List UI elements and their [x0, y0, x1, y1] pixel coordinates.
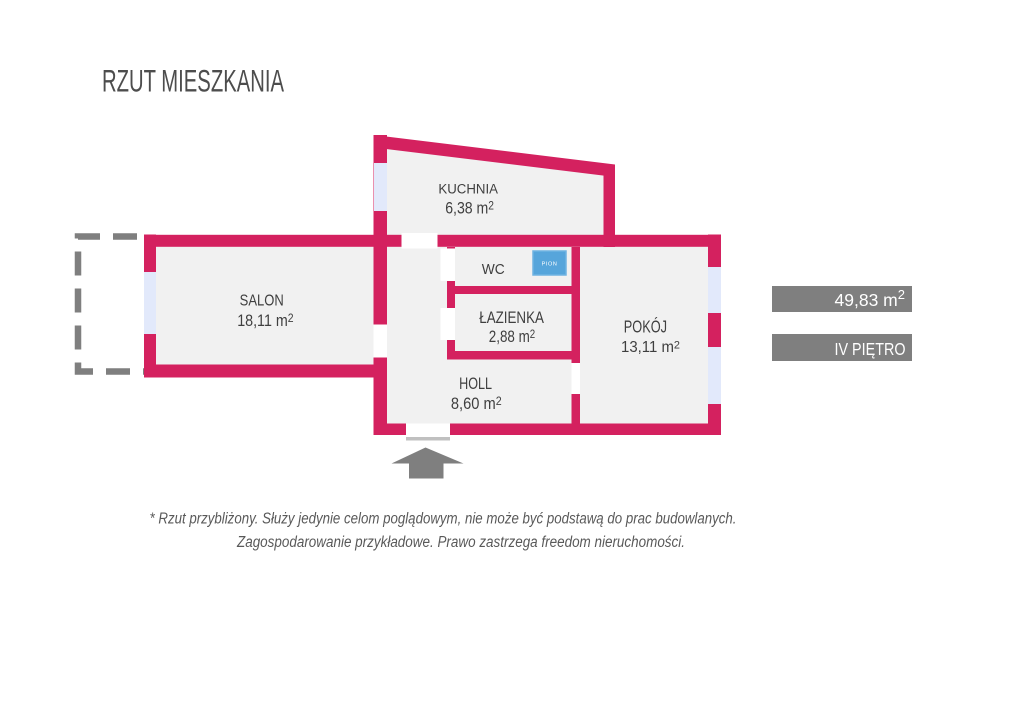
svg-text:49,83 m2: 49,83 m2 — [835, 287, 905, 310]
svg-text:2,88 m2: 2,88 m2 — [489, 327, 536, 346]
svg-text:WC: WC — [482, 261, 505, 278]
svg-text:KUCHNIA: KUCHNIA — [438, 181, 498, 197]
svg-text:Zagospodarowanie przykładowe.: Zagospodarowanie przykładowe. Prawo zast… — [236, 534, 685, 551]
svg-text:ŁAZIENKA: ŁAZIENKA — [479, 309, 544, 327]
svg-text:8,60 m2: 8,60 m2 — [451, 394, 502, 413]
svg-text:RZUT MIESZKANIA: RZUT MIESZKANIA — [102, 63, 284, 99]
svg-text:PION: PION — [542, 262, 558, 268]
svg-text:POKÓJ: POKÓJ — [624, 316, 667, 337]
svg-text:6,38 m2: 6,38 m2 — [445, 198, 494, 217]
svg-text:18,11 m2: 18,11 m2 — [237, 311, 294, 330]
svg-text:SALON: SALON — [240, 292, 284, 309]
svg-text:IV PIĘTRO: IV PIĘTRO — [835, 339, 906, 359]
svg-text:13,11 m2: 13,11 m2 — [621, 339, 680, 356]
svg-text:* Rzut przybliżony. Służy jedy: * Rzut przybliżony. Służy jedynie celom … — [150, 511, 737, 528]
svg-text:HOLL: HOLL — [459, 374, 492, 393]
